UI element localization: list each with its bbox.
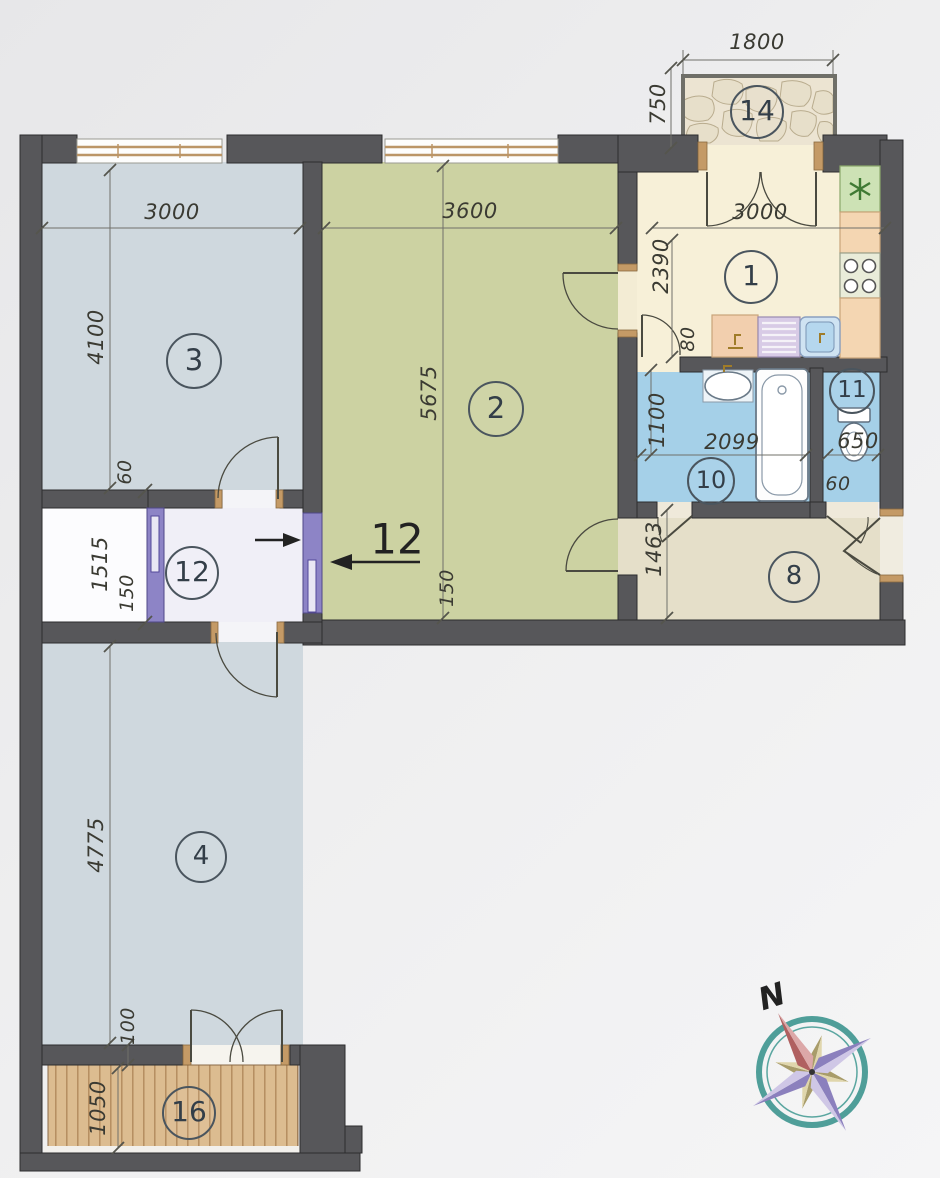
bathtub-inner [762, 375, 802, 495]
room-4-floor [42, 642, 303, 1045]
toilet-tank [838, 408, 870, 422]
closet-floor [42, 508, 147, 622]
entrance-doorway-floor [880, 515, 903, 577]
kitchen-doorway-floor [637, 357, 680, 372]
window-room3 [77, 139, 222, 163]
sliding-door-left [151, 516, 159, 572]
wc-doorway-floor [826, 502, 878, 518]
kitchen-balcony-doorway-floor [698, 142, 823, 172]
room-3-floor [42, 162, 303, 490]
counter-lower [840, 298, 880, 358]
balcony-16-floor [48, 1065, 298, 1149]
compass-rose-icon [719, 979, 905, 1165]
bath-sink-icon [705, 372, 751, 400]
room2-hall-doorway-floor [618, 518, 637, 575]
floors [42, 142, 903, 1154]
corridor-12-floor [164, 508, 303, 622]
room-2-floor [322, 162, 618, 620]
room2-doorway-floor [618, 270, 637, 333]
window-room2 [385, 139, 558, 163]
room3-doorway-floor [222, 490, 280, 508]
counter-upper [840, 212, 880, 253]
balcony16-doorway-floor [183, 1045, 290, 1065]
sliding-door-right [308, 560, 316, 612]
balcony-14 [683, 76, 835, 145]
floor-plan-drawing [0, 0, 940, 1178]
room4-doorway-floor [215, 622, 280, 643]
